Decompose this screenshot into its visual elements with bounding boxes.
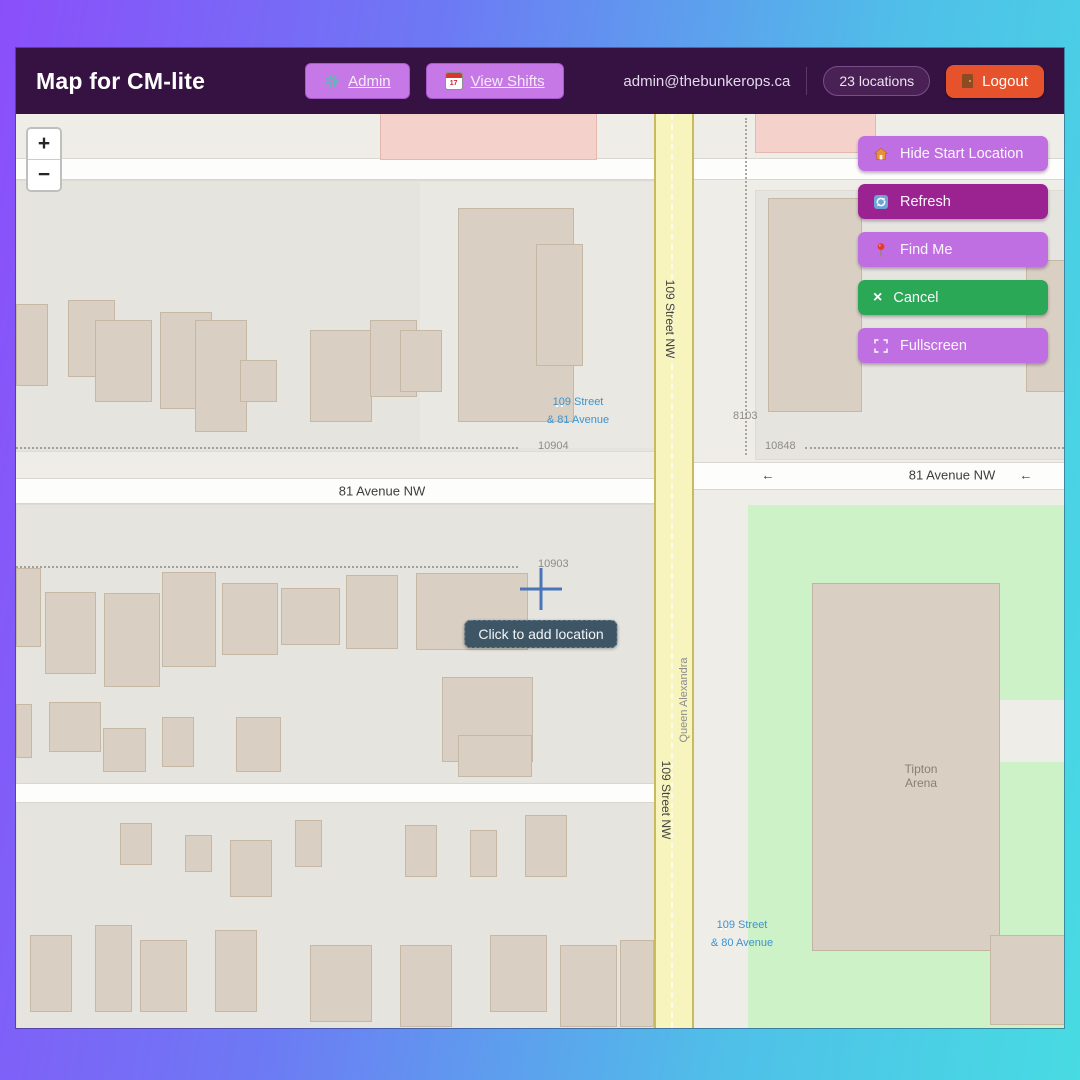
- address-label: 10903: [538, 558, 569, 570]
- calendar-icon: 17: [445, 72, 463, 90]
- gear-icon: [324, 73, 340, 89]
- logout-label: Logout: [982, 73, 1028, 90]
- oneway-arrow-icon: ←: [762, 468, 775, 483]
- address-label: 10848: [765, 440, 796, 452]
- map-canvas[interactable]: 10904 10848 8103 10903 81 Avenue NW 81 A…: [16, 114, 1064, 1028]
- transit-stop-81-avenue: 109 Street & 81 Avenue: [533, 392, 623, 428]
- building: [405, 825, 437, 877]
- cancel-button[interactable]: × Cancel: [858, 280, 1048, 315]
- building: [16, 704, 32, 758]
- building: [310, 945, 372, 1022]
- building: [104, 593, 160, 687]
- building: [525, 815, 567, 877]
- street-label-81-avenue: 81 Avenue NW: [339, 484, 425, 499]
- building: [240, 360, 277, 402]
- building: [990, 935, 1064, 1025]
- building: [162, 717, 194, 767]
- building: [400, 330, 442, 392]
- building: [215, 930, 257, 1012]
- transit-stop-80-avenue: 109 Street & 80 Avenue: [697, 915, 787, 951]
- building: [536, 244, 583, 366]
- building: [310, 330, 372, 422]
- building: [16, 304, 48, 386]
- refresh-icon: [873, 194, 889, 210]
- street-label-109-street: 109 Street NW: [663, 280, 677, 359]
- user-email: admin@thebunkerops.ca: [623, 73, 790, 90]
- house-icon: [873, 146, 889, 162]
- map-patch: [1000, 700, 1064, 762]
- parcel-dotted-line: [16, 447, 518, 449]
- boundary-dashed-line: [745, 118, 747, 455]
- building: [103, 728, 146, 772]
- app-window: Map for CM-lite Admin 17 View Shifts adm…: [16, 48, 1064, 1028]
- street-label-queen-alexandra: Queen Alexandra: [678, 657, 690, 742]
- map-action-buttons: Hide Start Location Refresh Find: [858, 136, 1048, 363]
- page-title: Map for CM-lite: [36, 68, 205, 95]
- pin-icon: [873, 242, 889, 258]
- admin-button[interactable]: Admin: [305, 63, 410, 99]
- parcel-dotted-line: [805, 447, 1064, 449]
- building: [236, 717, 281, 772]
- door-icon: [962, 74, 973, 88]
- building: [45, 592, 96, 674]
- zoom-out-button[interactable]: −: [28, 159, 60, 190]
- locations-count-badge: 23 locations: [823, 66, 930, 96]
- street-81-avenue-right: [688, 462, 1064, 490]
- fullscreen-icon: [873, 338, 889, 354]
- header-right: admin@thebunkerops.ca 23 locations Logou…: [623, 65, 1044, 98]
- building: [380, 114, 597, 160]
- view-shifts-label: View Shifts: [471, 73, 545, 90]
- road-109-street: [654, 114, 694, 1028]
- street-bottom: [16, 783, 656, 803]
- street-81-avenue-left: [16, 478, 656, 504]
- hide-start-location-button[interactable]: Hide Start Location: [858, 136, 1048, 171]
- building: [295, 820, 322, 867]
- building: [16, 568, 41, 647]
- building: [49, 702, 101, 752]
- building: [470, 830, 497, 877]
- building: [95, 925, 132, 1012]
- header-divider: [806, 67, 807, 95]
- building: [230, 840, 272, 897]
- building: [400, 945, 452, 1027]
- header-nav: Admin 17 View Shifts: [305, 63, 563, 99]
- address-label: 10904: [538, 440, 569, 452]
- street-label-109-street: 109 Street NW: [659, 761, 673, 840]
- building: [620, 940, 654, 1027]
- fullscreen-button[interactable]: Fullscreen: [858, 328, 1048, 363]
- building: [346, 575, 398, 649]
- oneway-arrow-icon: ←: [1020, 468, 1033, 483]
- building: [222, 583, 278, 655]
- road-centerline: [671, 114, 673, 1028]
- building: [30, 935, 72, 1012]
- header: Map for CM-lite Admin 17 View Shifts adm…: [16, 48, 1064, 114]
- zoom-in-button[interactable]: +: [28, 129, 60, 159]
- crosshair-icon: [540, 568, 543, 610]
- building: [458, 735, 532, 777]
- building: [162, 572, 216, 667]
- refresh-button[interactable]: Refresh: [858, 184, 1048, 219]
- parcel-dotted-line: [16, 566, 518, 568]
- admin-label: Admin: [348, 73, 391, 90]
- view-shifts-button[interactable]: 17 View Shifts: [426, 63, 564, 99]
- building: [281, 588, 340, 645]
- street-label-81-avenue: 81 Avenue NW: [909, 468, 995, 483]
- building: [490, 935, 547, 1012]
- add-location-tooltip: Click to add location: [464, 620, 617, 648]
- address-label: 8103: [733, 410, 757, 422]
- building: [768, 198, 862, 412]
- x-icon: ×: [873, 290, 882, 306]
- logout-button[interactable]: Logout: [946, 65, 1044, 98]
- building: [185, 835, 212, 872]
- building: [95, 320, 152, 402]
- building: [560, 945, 617, 1027]
- poi-label-tipton-arena: Tipton Arena: [905, 762, 938, 790]
- building: [120, 823, 152, 865]
- find-me-button[interactable]: Find Me: [858, 232, 1048, 267]
- zoom-control: + −: [26, 127, 62, 192]
- building: [140, 940, 187, 1012]
